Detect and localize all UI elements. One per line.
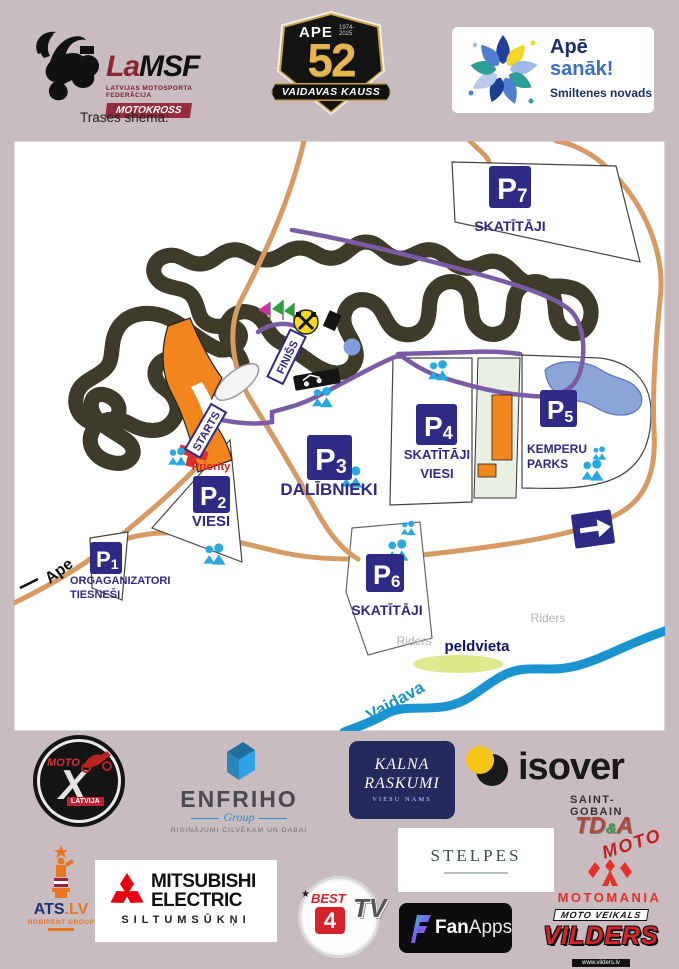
- vilders-name: VILDERS: [531, 922, 671, 951]
- map-title: Trases shēma:: [80, 110, 169, 125]
- ape-sanak-line1: Apē: [550, 36, 652, 58]
- motomania-logo: MOTOMANIA: [552, 858, 667, 905]
- peldvieta-label: peldvieta: [444, 638, 510, 655]
- p6-caption: SKATĪTĀJI: [351, 602, 422, 618]
- lamsf-name: LaMSF: [106, 50, 228, 84]
- ats-name: ATS.LV: [26, 901, 96, 919]
- lamsf-federation: LATVIJAS MOTOSPORTA FEDERĀCIJA: [106, 85, 228, 99]
- building-small: [478, 464, 496, 477]
- mitsubishi-product: SILTUMSŪKŅI: [95, 914, 277, 926]
- kalna-line2: RASKUMI: [349, 774, 455, 793]
- ape-sanak-logo: Apē sanāk! Smiltenes novads: [452, 27, 654, 113]
- best4-tv-logo: ★ BEST 4 TV: [298, 876, 380, 958]
- p3-caption: DALĪBNIEKI: [280, 480, 377, 499]
- ape-sanak-flower-icon: [458, 29, 548, 113]
- badge-number: 52: [277, 33, 385, 87]
- p4-caption-2: VIESI: [420, 466, 453, 481]
- stelpes-name: STELPES: [398, 846, 554, 866]
- mitsubishi-diamonds-icon: [107, 872, 147, 910]
- lamsf-la: La: [106, 50, 139, 83]
- vilders-shop-text: MOTO VEIKALS: [553, 909, 649, 921]
- ape-sanak-text: Apē sanāk! Smiltenes novads: [550, 36, 652, 100]
- p5-caption-1: KEMPERU: [527, 442, 587, 456]
- enfriho-cube-icon: [213, 740, 265, 784]
- p2-caption: VIESI: [192, 513, 230, 530]
- vilders-logo: MOTO VEIKALS VILDERS www.vilders.lv: [531, 905, 671, 969]
- p2-priority: Priority: [192, 461, 231, 473]
- motomania-m-icon: [586, 858, 634, 888]
- p1-caption-2: TIESNEŠI: [70, 588, 120, 601]
- lamsf-text: LaMSF LATVIJAS MOTOSPORTA FEDERĀCIJA MOT…: [106, 50, 228, 118]
- building-large: [492, 395, 512, 460]
- best4-tv-text: TV: [353, 893, 386, 924]
- fanapps-f-icon: [407, 913, 433, 943]
- kalna-line3: VIESU NAMS: [349, 796, 455, 803]
- lamsf-griffin-icon: [28, 22, 106, 106]
- enfriho-logo: ENFRIHO Group RISINĀJUMI CILVĒKAM UN DAB…: [160, 740, 318, 834]
- mitsubishi-logo: MITSUBISHI ELECTRIC SILTUMSŪKŅI: [95, 860, 277, 942]
- best4-best-text: BEST: [311, 891, 346, 906]
- motox-latvija-logo: MOTO X LATVIJA: [33, 735, 125, 827]
- ats-bar: [48, 928, 74, 931]
- p1-caption-1: ORGAGANIZATORI: [70, 575, 170, 587]
- badge-ribbon: VAIDAVAS KAUSS: [271, 83, 391, 101]
- vilders-url: www.vilders.lv: [572, 959, 630, 967]
- direction-arrow-sign: [571, 509, 615, 548]
- isover-sun-icon: [462, 742, 518, 792]
- isover-logo: isover SAINT-GOBAIN: [462, 742, 667, 797]
- lamsf-logo: LaMSF LATVIJAS MOTOSPORTA FEDERĀCIJA MOT…: [28, 22, 228, 114]
- ape52-badge: APE 1974- 2025 52 VAIDAVAS KAUSS: [277, 11, 385, 115]
- pond-dot: [344, 339, 361, 356]
- motox-latvija-text: LATVIJA: [67, 797, 104, 806]
- lamsf-msf: MSF: [139, 50, 199, 83]
- ats-group: ROBIRENT GROUP: [26, 919, 96, 926]
- fanapps-logo: FanApps: [399, 903, 512, 953]
- p5-caption-2: PARKS: [527, 457, 568, 471]
- enfriho-name: ENFRIHO: [160, 786, 318, 813]
- track-map: STARTS FINIŠS P7 P5 P4 P3 P2 P6 P1 SKATĪ…: [14, 141, 665, 731]
- kalna-line1: KALNA: [349, 755, 455, 774]
- motox-rider-icon: [77, 747, 117, 773]
- crossed-flags-icon: [294, 310, 318, 334]
- stelpes-logo: STELPES: [398, 828, 554, 892]
- riders-label-2: Riders: [531, 611, 566, 625]
- enfriho-tagline: RISINĀJUMI CILVĒKAM UN DABAI: [160, 827, 318, 834]
- swimming-spot: [413, 655, 503, 673]
- ape-sanak-line2: sanāk!: [550, 58, 652, 80]
- best4-four: 4: [315, 907, 345, 934]
- stelpes-tagline-smudge: [444, 872, 508, 874]
- fanapps-name: FanApps: [435, 917, 512, 939]
- ape-sanak-line3: Smiltenes novads: [550, 86, 652, 100]
- ats-statue-icon: [43, 845, 79, 899]
- p4-caption-1: SKATĪTĀJI: [404, 447, 470, 462]
- riders-label-1: Riders: [397, 634, 432, 648]
- mitsubishi-name: MITSUBISHI ELECTRIC: [151, 872, 256, 910]
- best4-star-icon: ★: [301, 889, 310, 900]
- ats-lv-logo: ATS.LV ROBIRENT GROUP: [26, 845, 96, 931]
- isover-name: isover: [518, 746, 624, 789]
- p7-caption: SKATĪTĀJI: [474, 218, 545, 234]
- motomania-name: MOTOMANIA: [552, 890, 667, 905]
- kalna-raskumi-logo: KALNA RASKUMI VIESU NAMS: [349, 741, 455, 819]
- poster-page: { "colors": { "background_mauve": "#c8bc…: [0, 0, 679, 960]
- purple-paddock-path: [398, 352, 520, 354]
